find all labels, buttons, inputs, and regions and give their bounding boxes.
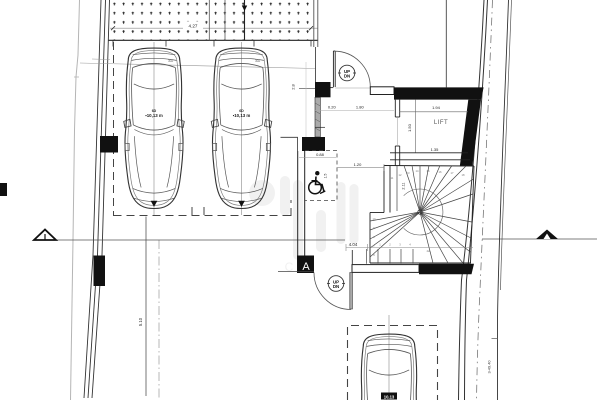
svg-text:LIFT: LIFT bbox=[434, 120, 448, 126]
svg-text:18: 18 bbox=[462, 173, 465, 177]
svg-text:DN: DN bbox=[344, 74, 350, 79]
svg-text:4a: 4a bbox=[427, 249, 430, 253]
svg-text:2.8: 2.8 bbox=[291, 83, 296, 89]
svg-text:DN: DN bbox=[333, 284, 339, 289]
svg-text:3-49.40: 3-49.40 bbox=[488, 361, 492, 374]
svg-text:302: 302 bbox=[255, 59, 261, 63]
svg-text:11: 11 bbox=[391, 176, 394, 180]
svg-text:4.27: 4.27 bbox=[189, 24, 198, 29]
svg-text:17: 17 bbox=[451, 171, 454, 175]
svg-text:5.10: 5.10 bbox=[138, 317, 143, 326]
svg-text:302: 302 bbox=[168, 59, 174, 63]
svg-text:1.5: 1.5 bbox=[324, 174, 328, 179]
svg-text:2.11: 2.11 bbox=[402, 182, 406, 189]
svg-text:15: 15 bbox=[427, 169, 430, 173]
svg-text:0.88: 0.88 bbox=[316, 152, 325, 157]
svg-text:10: 10 bbox=[373, 217, 376, 221]
svg-text:4.04: 4.04 bbox=[349, 242, 358, 247]
svg-text:1.20: 1.20 bbox=[354, 162, 363, 167]
svg-text:▪10,13 m: ▪10,13 m bbox=[233, 113, 251, 118]
svg-text:0.20: 0.20 bbox=[328, 105, 337, 110]
svg-text:1.35: 1.35 bbox=[431, 147, 440, 152]
svg-text:1.80: 1.80 bbox=[356, 105, 365, 110]
svg-text:1.50: 1.50 bbox=[407, 123, 412, 132]
svg-text:▪10,13 m: ▪10,13 m bbox=[145, 113, 163, 118]
svg-text:16: 16 bbox=[439, 170, 442, 174]
svg-text:6D: 6D bbox=[239, 109, 244, 113]
svg-text:13: 13 bbox=[407, 171, 410, 175]
svg-text:1.94: 1.94 bbox=[432, 105, 441, 110]
svg-text:10,13: 10,13 bbox=[384, 395, 395, 400]
svg-text:12: 12 bbox=[399, 173, 402, 177]
svg-text:14: 14 bbox=[416, 169, 419, 173]
svg-text:6D: 6D bbox=[152, 109, 157, 113]
